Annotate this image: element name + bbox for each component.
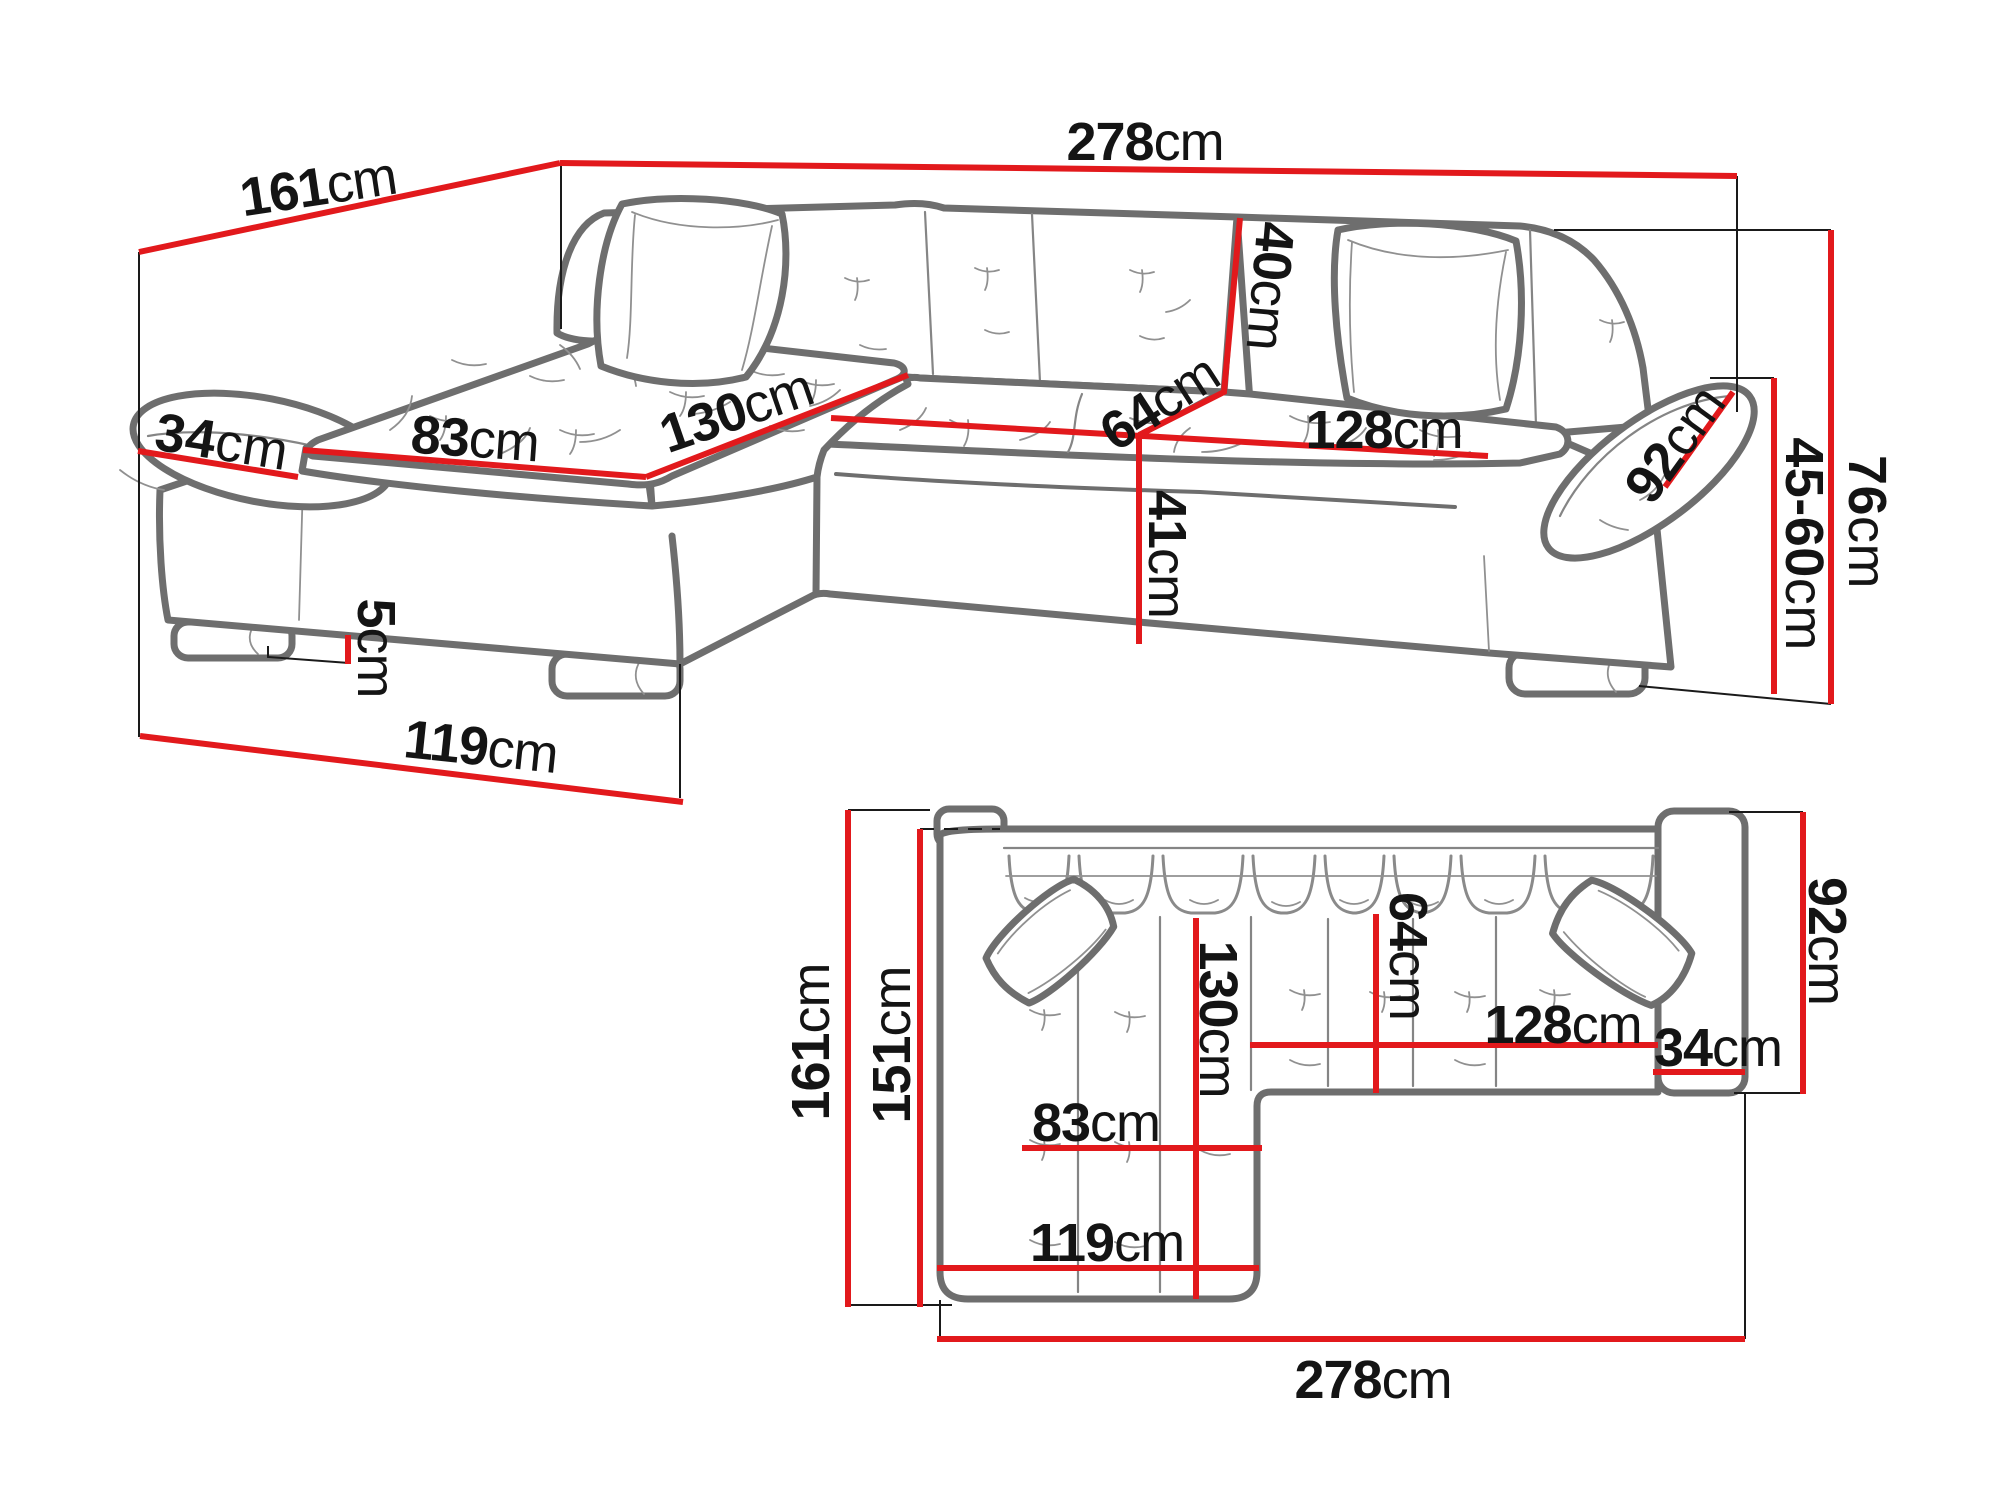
- svg-text:34cm: 34cm: [1654, 1018, 1782, 1078]
- svg-text:278cm: 278cm: [1294, 1350, 1451, 1410]
- svg-text:76cm: 76cm: [1837, 455, 1897, 589]
- svg-text:128cm: 128cm: [1305, 400, 1462, 460]
- svg-text:64cm: 64cm: [1378, 892, 1438, 1020]
- svg-text:41cm: 41cm: [1137, 490, 1197, 618]
- svg-text:40cm: 40cm: [1235, 220, 1306, 353]
- svg-text:151cm: 151cm: [862, 966, 922, 1123]
- svg-text:130cm: 130cm: [1188, 940, 1248, 1097]
- svg-text:83cm: 83cm: [409, 405, 541, 474]
- svg-text:45-60cm: 45-60cm: [1774, 437, 1834, 651]
- svg-text:278cm: 278cm: [1066, 112, 1223, 172]
- svg-text:92cm: 92cm: [1797, 877, 1857, 1005]
- svg-text:83cm: 83cm: [1032, 1093, 1160, 1153]
- svg-text:128cm: 128cm: [1484, 995, 1641, 1055]
- svg-text:161cm: 161cm: [236, 146, 400, 229]
- svg-text:161cm: 161cm: [781, 963, 841, 1120]
- svg-text:119cm: 119cm: [1030, 1213, 1184, 1273]
- svg-text:5cm: 5cm: [346, 598, 406, 697]
